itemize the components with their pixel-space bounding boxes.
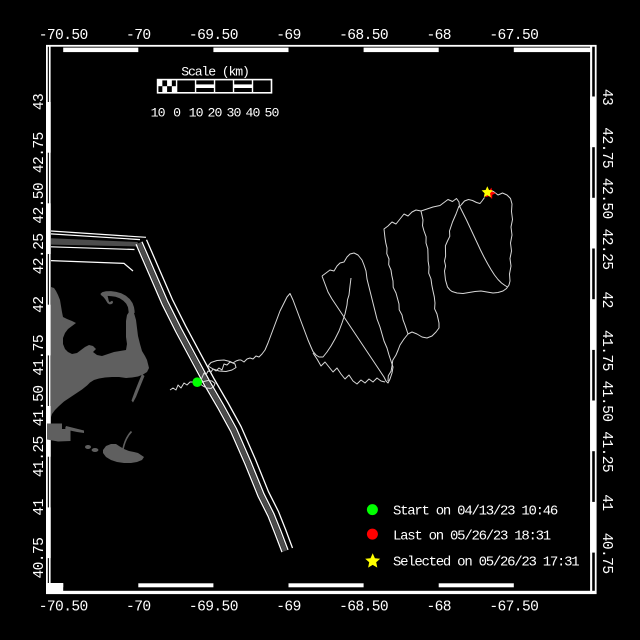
svg-text:-69.50: -69.50 [189, 600, 238, 616]
svg-text:42: 42 [598, 292, 614, 308]
svg-text:-67.50: -67.50 [489, 28, 538, 44]
svg-text:42.75: 42.75 [598, 127, 614, 168]
svg-text:Scale (km): Scale (km) [181, 65, 248, 80]
svg-text:43: 43 [598, 89, 614, 105]
svg-text:41.25: 41.25 [32, 436, 48, 477]
svg-text:-70: -70 [126, 600, 150, 616]
svg-text:10: 10 [151, 106, 166, 121]
svg-text:0: 0 [173, 106, 181, 121]
svg-text:-67.50: -67.50 [489, 600, 538, 616]
svg-text:43: 43 [32, 94, 48, 110]
svg-text:41.50: 41.50 [598, 381, 614, 422]
svg-text:Selected on 05/26/23 17:31: Selected on 05/26/23 17:31 [393, 555, 579, 571]
svg-text:-68: -68 [426, 600, 450, 616]
svg-text:42: 42 [32, 297, 48, 313]
svg-text:10: 10 [189, 106, 204, 121]
svg-text:41: 41 [598, 494, 614, 511]
svg-text:40.75: 40.75 [32, 538, 48, 579]
svg-text:42.25: 42.25 [598, 229, 614, 270]
svg-text:-70.50: -70.50 [39, 28, 88, 44]
svg-text:50: 50 [264, 106, 279, 121]
svg-text:-69: -69 [276, 600, 300, 616]
svg-text:42.75: 42.75 [32, 132, 48, 173]
svg-text:-68.50: -68.50 [339, 28, 388, 44]
svg-text:42.25: 42.25 [32, 234, 48, 275]
svg-text:-68: -68 [426, 28, 450, 44]
svg-text:41.50: 41.50 [32, 386, 48, 427]
svg-text:-70.50: -70.50 [39, 600, 88, 616]
svg-text:-69.50: -69.50 [189, 28, 238, 44]
svg-text:41.75: 41.75 [598, 330, 614, 371]
svg-text:-69: -69 [276, 28, 300, 44]
svg-text:30: 30 [226, 106, 241, 121]
svg-text:41.75: 41.75 [32, 335, 48, 376]
svg-text:42.50: 42.50 [598, 178, 614, 219]
svg-text:40: 40 [245, 106, 260, 121]
svg-text:Start on 04/13/23 10:46: Start on 04/13/23 10:46 [393, 504, 558, 520]
svg-text:-68.50: -68.50 [339, 600, 388, 616]
svg-text:40.75: 40.75 [598, 533, 614, 574]
svg-text:42.50: 42.50 [32, 183, 48, 224]
svg-text:41: 41 [32, 498, 48, 515]
svg-text:41.25: 41.25 [598, 431, 614, 472]
svg-text:Last on 05/26/23 18:31: Last on 05/26/23 18:31 [393, 529, 551, 545]
svg-text:-70: -70 [126, 28, 150, 44]
svg-text:20: 20 [207, 106, 222, 121]
